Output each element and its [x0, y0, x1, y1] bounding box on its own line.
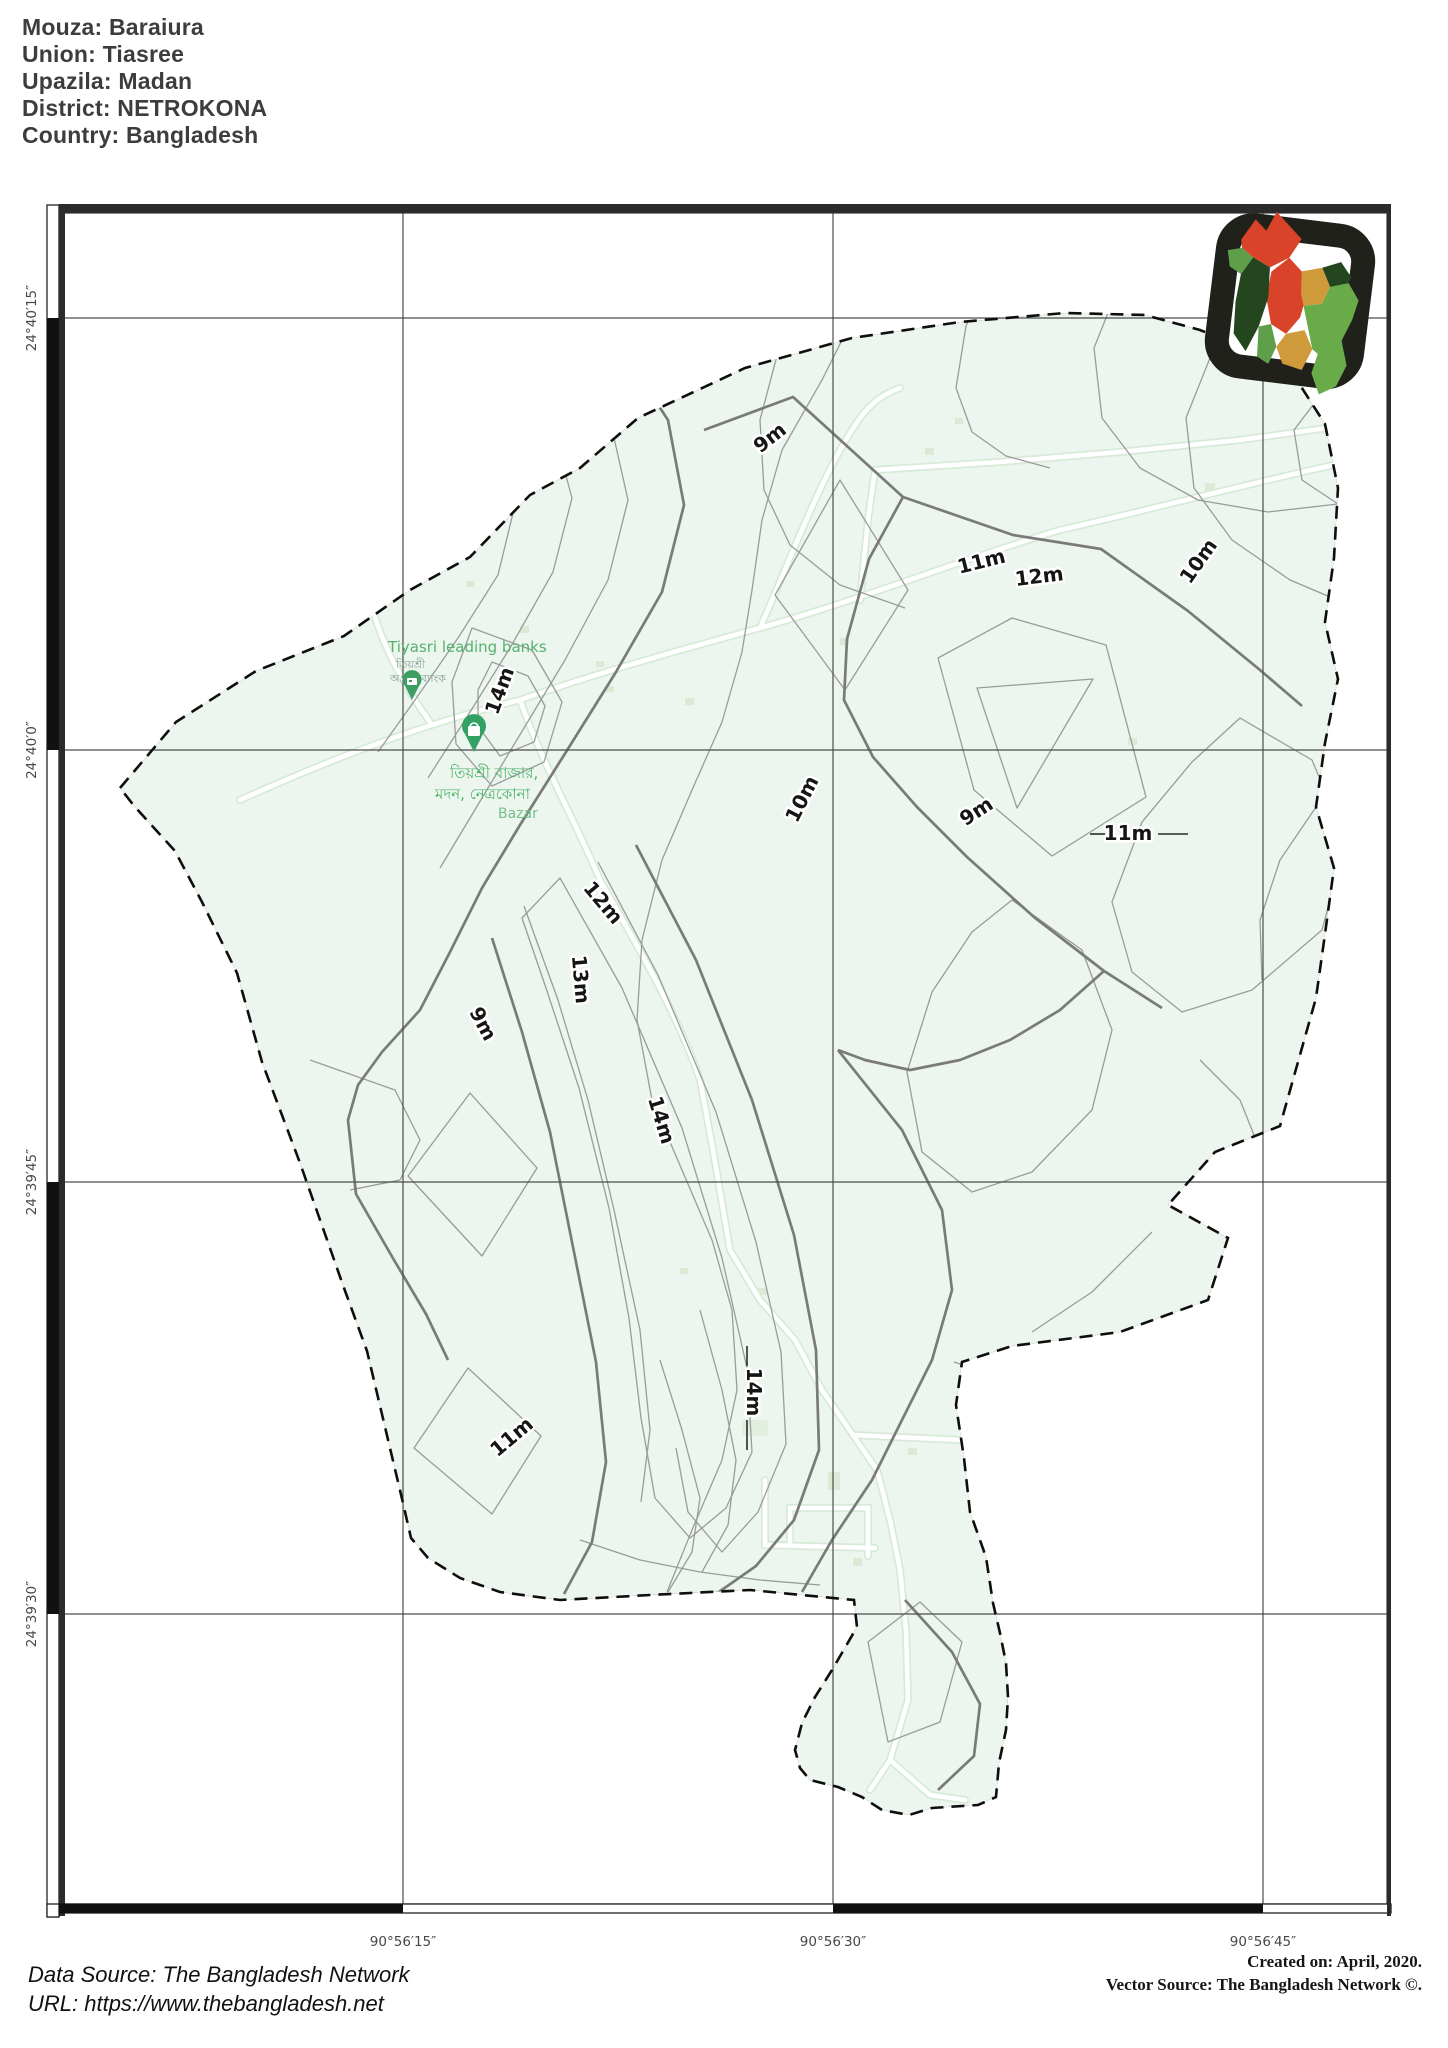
place-label-bazar-en: Bazar	[498, 806, 538, 822]
frame-bar-top	[59, 204, 1391, 213]
data-source-line: Data Source: The Bangladesh Network	[28, 1960, 410, 1989]
url-line[interactable]: URL: https://www.thebangladesh.net	[28, 1989, 410, 2018]
contour-label: 11m	[1104, 821, 1153, 845]
latitude-label: 24°40′0″	[24, 721, 40, 779]
latitude-label: 24°39′45″	[24, 1149, 40, 1215]
frame-bar-right	[1387, 204, 1391, 1916]
latitude-label: 24°40′15″	[24, 285, 40, 351]
footer-source-block: Data Source: The Bangladesh Network URL:…	[28, 1960, 410, 2018]
map-layout-page: Mouza: Baraiura Union: Tiasree Upazila: …	[0, 0, 1448, 2048]
created-on-line: Created on: April, 2020.	[1106, 1950, 1422, 1973]
place-label-bazar-bn1: তিয়শ্রী বাজার,	[449, 763, 538, 782]
bangladesh-map-logo	[1189, 196, 1389, 406]
vector-source-line: Vector Source: The Bangladesh Network ©.	[1106, 1973, 1422, 1996]
map-frame-interior: Tiyasri leading banks তিয়শ্রী অগ্রণী ব্…	[64, 213, 1390, 1904]
place-label-bazar-bn2: মদন, নেত্রকোনা	[434, 785, 531, 803]
longitude-labels: 90°56′15″90°56′30″90°56′45″	[370, 1934, 1296, 1950]
contour-label: 14m	[742, 1368, 766, 1417]
contour-label: 13m	[567, 954, 595, 1005]
latitude-label: 24°39′30″	[24, 1581, 40, 1647]
place-label-bank-bn1: তিয়শ্রী	[395, 658, 426, 671]
longitude-label: 90°56′15″	[370, 1934, 436, 1950]
footer-credits-block: Created on: April, 2020. Vector Source: …	[1106, 1950, 1422, 1996]
longitude-label: 90°56′30″	[800, 1934, 866, 1950]
latitude-labels: 24°40′15″24°40′0″24°39′45″24°39′30″	[24, 285, 40, 1647]
place-label-bank: Tiyasri leading banks	[387, 638, 547, 656]
longitude-label: 90°56′45″	[1230, 1934, 1296, 1950]
